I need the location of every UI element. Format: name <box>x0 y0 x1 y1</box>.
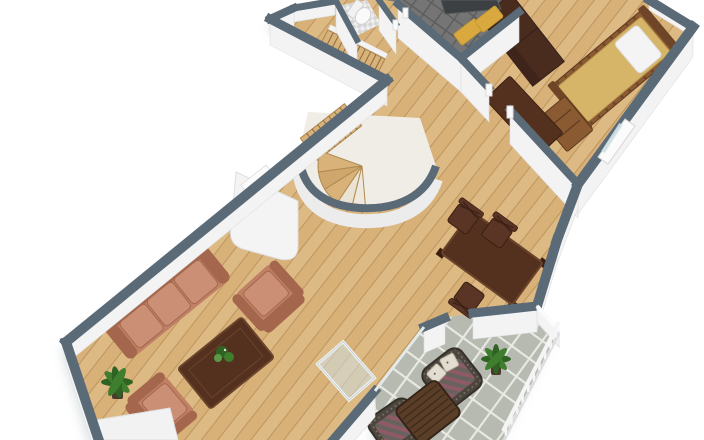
table-plant-leaf-2 <box>224 352 234 362</box>
bedroom-door-post-1 <box>486 84 492 96</box>
bedroom-door-post-2 <box>507 106 513 118</box>
table-plant-fleck <box>224 349 226 351</box>
floor-plan-svg <box>0 0 704 440</box>
bathroom-door-post-2 <box>403 8 408 18</box>
floor-plan-image <box>0 0 704 440</box>
bathroom-door-post-1 <box>393 20 398 30</box>
table-plant-leaf-3 <box>214 354 222 362</box>
